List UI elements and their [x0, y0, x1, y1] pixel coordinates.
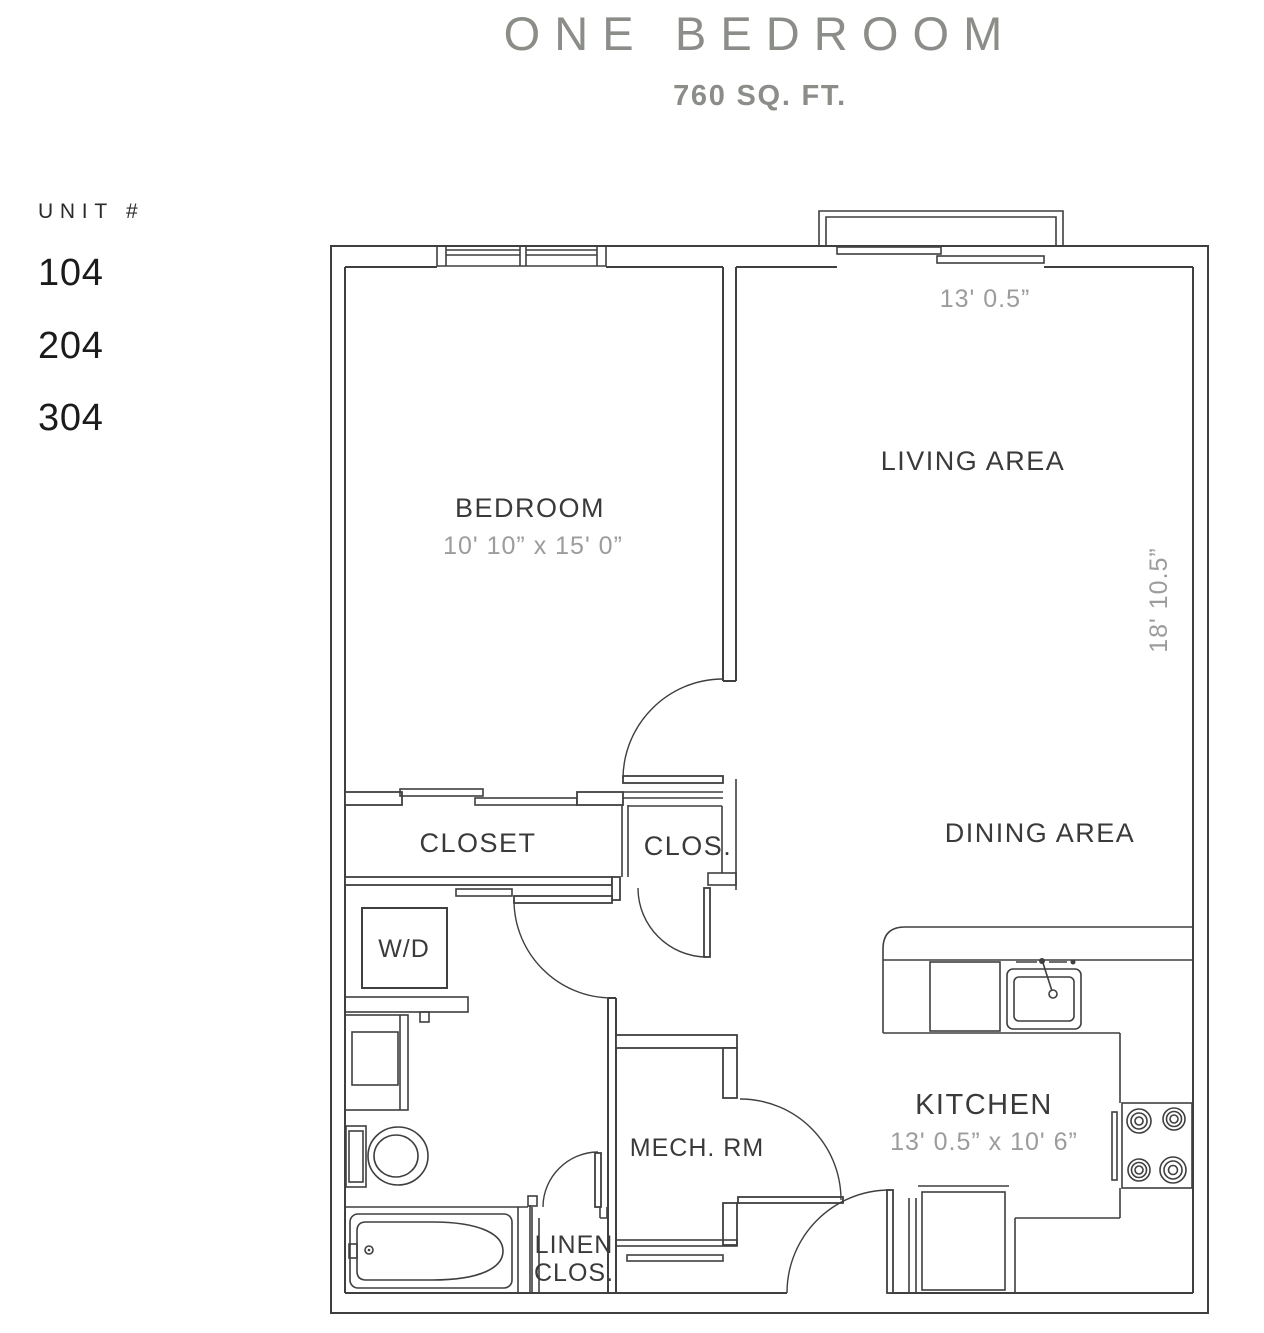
- bedroom-door-icon: [623, 679, 723, 783]
- floor-plan-drawing: BEDROOM 10' 10” x 15' 0” LIVING AREA 13'…: [0, 0, 1264, 1333]
- bathroom-door-icon: [456, 889, 612, 998]
- clos-label: CLOS.: [644, 831, 733, 861]
- bedroom-living-divider-wall: [723, 267, 736, 681]
- washer-dryer-label: W/D: [378, 935, 430, 963]
- vanity-sink-icon: [345, 997, 468, 1110]
- bedroom-dimensions: 10' 10” x 15' 0”: [443, 532, 623, 560]
- closet-label: CLOSET: [419, 828, 536, 858]
- linen-closet-label-line2: CLOS.: [534, 1259, 614, 1287]
- toilet-icon: [346, 1126, 428, 1187]
- linen-closet-label-line1: LINEN: [535, 1231, 614, 1259]
- right-dimension: 18' 10.5”: [1145, 547, 1173, 653]
- kitchen-dimensions: 13' 0.5” x 10' 6”: [890, 1128, 1078, 1156]
- box-window-icon: [819, 211, 1063, 263]
- entry-door-icon: [787, 1190, 893, 1293]
- top-dimension: 13' 0.5”: [940, 285, 1031, 313]
- kitchen-sink-icon: [1007, 958, 1081, 1029]
- kitchen-label: KITCHEN: [915, 1089, 1053, 1121]
- bedroom-label: BEDROOM: [455, 493, 605, 523]
- clos-door-icon: [638, 888, 710, 957]
- linen-closet-door-icon: [543, 1152, 601, 1207]
- dishwasher-icon: [930, 962, 1000, 1031]
- bedroom-window-icon: [437, 246, 606, 266]
- dining-area-label: DINING AREA: [945, 818, 1136, 848]
- floor-plan-page: ONE BEDROOM 760 SQ. FT. UNIT # 104 204 3…: [0, 0, 1264, 1333]
- bathtub-icon: [345, 1205, 530, 1293]
- living-area-label: LIVING AREA: [881, 446, 1066, 476]
- refrigerator-icon: [909, 1186, 1009, 1292]
- stove-icon: [1112, 1103, 1192, 1188]
- mech-room-label: MECH. RM: [630, 1134, 764, 1162]
